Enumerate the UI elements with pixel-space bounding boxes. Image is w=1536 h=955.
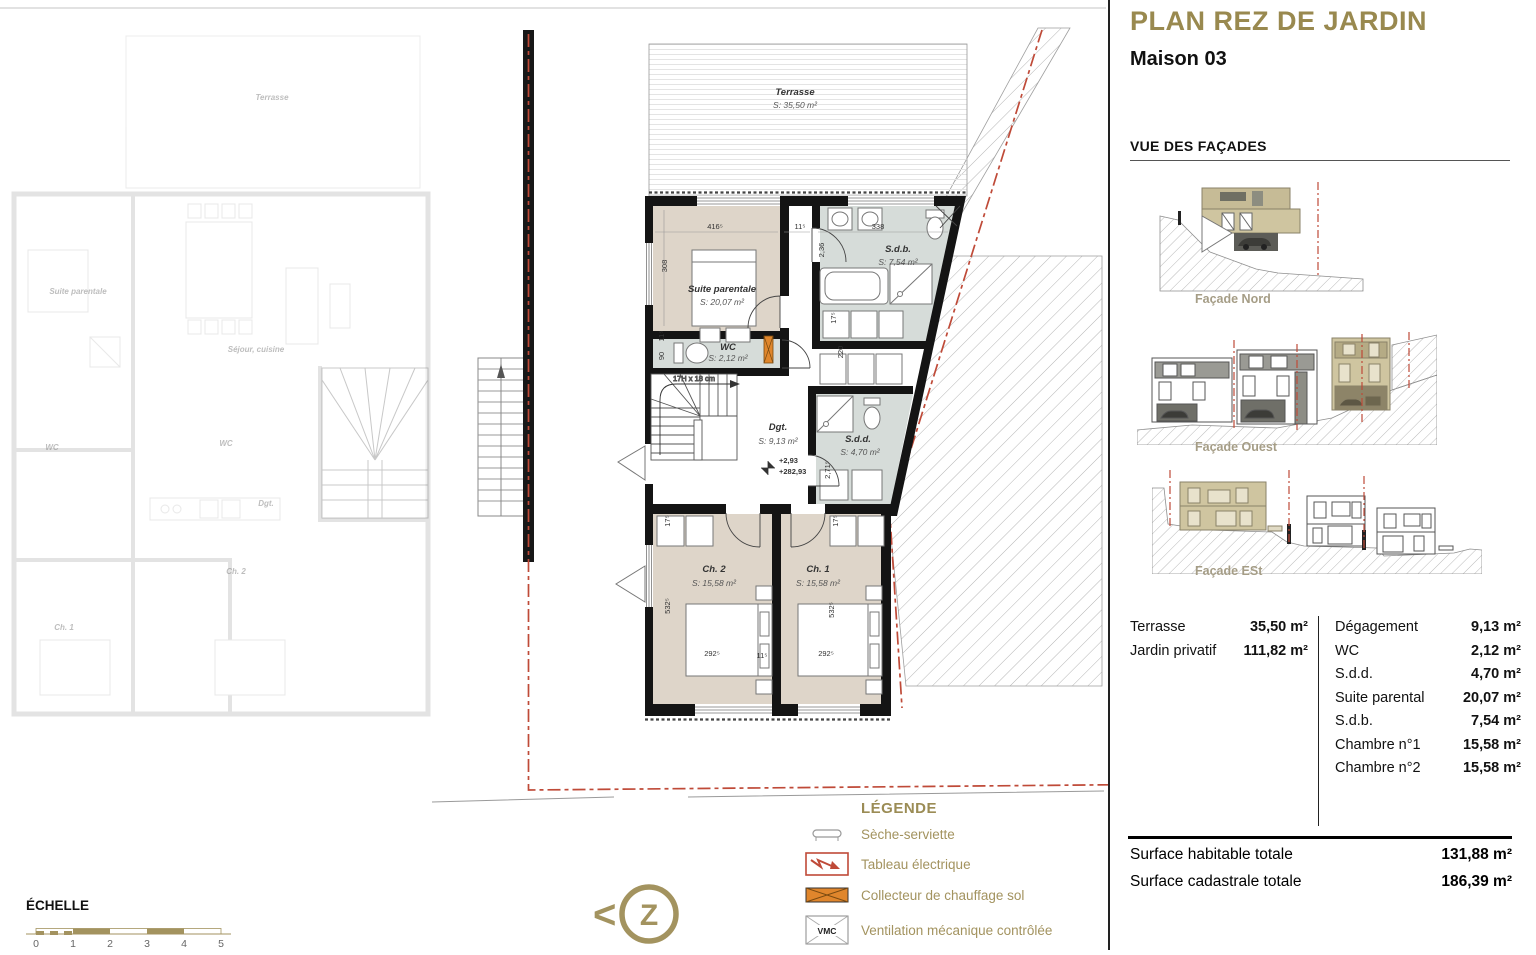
area-row: S.d.b.7,54 m² xyxy=(1335,710,1521,734)
ghost-room-label: Séjour, cuisine xyxy=(228,345,285,354)
total-row-cadastrale: Surface cadastrale totale186,39 m² xyxy=(1130,873,1512,891)
room-label-wc: WC xyxy=(720,342,736,353)
svg-text:2,36: 2,36 xyxy=(817,243,826,258)
scale-ticks: 0 1 2 3 4 5 xyxy=(33,938,224,950)
legend: LÉGENDE Sèche-serviette Tableau électriq… xyxy=(793,800,1103,946)
room-label-sdb: S.d.b. xyxy=(885,244,911,255)
svg-text:532⁵: 532⁵ xyxy=(663,598,672,614)
room-area-suite: S: 20,07 m² xyxy=(700,297,745,307)
facade-est-drawing xyxy=(1152,466,1482,574)
legend-item: Collecteur de chauffage sol xyxy=(793,886,1103,905)
area-row: Jardin privatif111,82 m² xyxy=(1130,640,1308,664)
ghost-room-label: Ch. 1 xyxy=(54,623,74,632)
svg-text:11⁵: 11⁵ xyxy=(657,331,666,342)
svg-text:220: 220 xyxy=(836,346,845,359)
electric-panel-icon xyxy=(804,851,850,877)
svg-text:416⁵: 416⁵ xyxy=(707,222,723,231)
svg-text:292⁵: 292⁵ xyxy=(704,649,720,658)
svg-text:2,71⁵: 2,71⁵ xyxy=(823,461,832,479)
ghost-room-label: Suite parentale xyxy=(49,287,107,296)
area-row: Dégagement9,13 m² xyxy=(1335,616,1521,640)
legend-heading: LÉGENDE xyxy=(861,800,1103,817)
svg-text:0: 0 xyxy=(33,938,39,950)
svg-text:1: 1 xyxy=(70,938,76,950)
ghost-room-label: Dgt. xyxy=(258,499,274,508)
areas-column-exterior: Terrasse35,50 m² Jardin privatif111,82 m… xyxy=(1130,616,1308,663)
svg-text:4: 4 xyxy=(181,938,187,950)
room-area-ch2: S: 15,58 m² xyxy=(692,578,737,588)
svg-text:90: 90 xyxy=(657,352,666,360)
facade-ouest-drawing xyxy=(1137,330,1437,445)
scale-heading: ÉCHELLE xyxy=(26,898,89,913)
svg-text:532⁵: 532⁵ xyxy=(827,602,836,618)
facade-nord-drawing xyxy=(1158,178,1376,296)
svg-text:3: 3 xyxy=(144,938,150,950)
svg-text:5: 5 xyxy=(218,938,224,950)
room-area-ch1: S: 15,58 m² xyxy=(796,578,841,588)
facade-nord-label: Façade Nord xyxy=(1195,292,1271,306)
ghost-room-label: WC xyxy=(219,439,233,448)
facades-rule xyxy=(1130,160,1510,161)
area-row: WC2,12 m² xyxy=(1335,640,1521,664)
legend-item: VMC Ventilation mécanique contrôlée xyxy=(793,914,1103,946)
ch2-bed xyxy=(686,604,772,676)
vmc-icon: VMC xyxy=(804,914,850,946)
compass-letter: Z xyxy=(640,899,658,932)
plan-sheet: { "sheet": { "title": "PLAN REZ DE JARDI… xyxy=(0,0,1536,950)
ch1-bed xyxy=(798,604,882,676)
svg-text:17⁵: 17⁵ xyxy=(831,515,840,526)
interior-stair: 17H x 18 cm xyxy=(651,374,740,460)
room-label-dgt: Dgt. xyxy=(769,422,787,433)
entry-door-leaf xyxy=(618,446,645,480)
sheet-title: PLAN REZ DE JARDIN xyxy=(1130,6,1427,37)
room-area-wc: S: 2,12 m² xyxy=(708,353,748,363)
room-area-sdb: S: 7,54 m² xyxy=(878,257,918,267)
towel-dryer-icon xyxy=(805,826,849,842)
room-label-terrasse: Terrasse xyxy=(775,87,815,98)
areas-column-interior: Dégagement9,13 m² WC2,12 m² S.d.d.4,70 m… xyxy=(1318,616,1521,826)
area-row: Suite parental20,07 m² xyxy=(1335,687,1521,711)
totals-rule xyxy=(1128,836,1512,839)
sheet-subtitle: Maison 03 xyxy=(1130,48,1227,71)
terrace: Terrasse S: 35,50 m² xyxy=(649,44,967,196)
svg-text:11⁵: 11⁵ xyxy=(795,222,806,231)
svg-text:17⁵: 17⁵ xyxy=(663,515,672,526)
area-row: Chambre n°215,58 m² xyxy=(1335,757,1521,781)
areas-table: Terrasse35,50 m² Jardin privatif111,82 m… xyxy=(1130,612,1518,826)
compass-chevron: < xyxy=(593,893,616,937)
room-label-suite: Suite parentale xyxy=(688,284,757,295)
level-absolute: +282,93 xyxy=(779,467,806,476)
level-relative: +2,93 xyxy=(779,456,798,465)
room-label-ch1: Ch. 1 xyxy=(806,564,829,575)
legend-item: Sèche-serviette xyxy=(793,826,1103,842)
area-row: Chambre n°115,58 m² xyxy=(1335,734,1521,758)
ghost-room-label: Terrasse xyxy=(255,93,289,102)
sdd-toilet xyxy=(864,398,880,405)
svg-text:292⁵: 292⁵ xyxy=(818,649,834,658)
legend-item: Tableau électrique xyxy=(793,851,1103,877)
svg-text:17⁵: 17⁵ xyxy=(829,312,838,323)
facades-heading: VUE DES FAÇADES xyxy=(1130,138,1267,154)
level-marker: +2,93 +282,93 xyxy=(761,456,806,476)
svg-text:11⁵: 11⁵ xyxy=(757,651,768,660)
room-area-dgt: S: 9,13 m² xyxy=(758,436,798,446)
ghost-room-label: Ch. 2 xyxy=(226,567,246,576)
svg-text:338: 338 xyxy=(872,222,885,231)
svg-text:VMC: VMC xyxy=(818,926,837,936)
total-row-habitable: Surface habitable totale131,88 m² xyxy=(1130,846,1512,864)
floor-heating-collector-icon xyxy=(804,886,850,905)
room-area-terrasse: S: 35,50 m² xyxy=(773,100,818,110)
facade-ouest-label: Façade Ouest xyxy=(1195,440,1277,454)
north-compass-icon: < Z xyxy=(585,876,695,955)
room-area-sdd: S: 4,70 m² xyxy=(840,447,880,457)
room-label-sdd: S.d.d. xyxy=(845,434,871,445)
title-block-panel: PLAN REZ DE JARDIN Maison 03 VUE DES FAÇ… xyxy=(1108,0,1536,950)
ghost-stair xyxy=(322,368,428,518)
area-row: Terrasse35,50 m² xyxy=(1130,616,1308,640)
svg-text:2: 2 xyxy=(107,938,113,950)
ch2-french-door-leaf xyxy=(616,566,645,602)
svg-text:308: 308 xyxy=(660,260,669,273)
area-row: S.d.d.4,70 m² xyxy=(1335,663,1521,687)
stair-note: 17H x 18 cm xyxy=(673,374,715,383)
scale-bar: ÉCHELLE 0 1 2 3 4 5 xyxy=(10,890,250,955)
facade-est-label: Façade ESt xyxy=(1195,564,1262,578)
ghost-room-label: WC xyxy=(45,443,59,452)
room-label-ch2: Ch. 2 xyxy=(702,564,726,575)
